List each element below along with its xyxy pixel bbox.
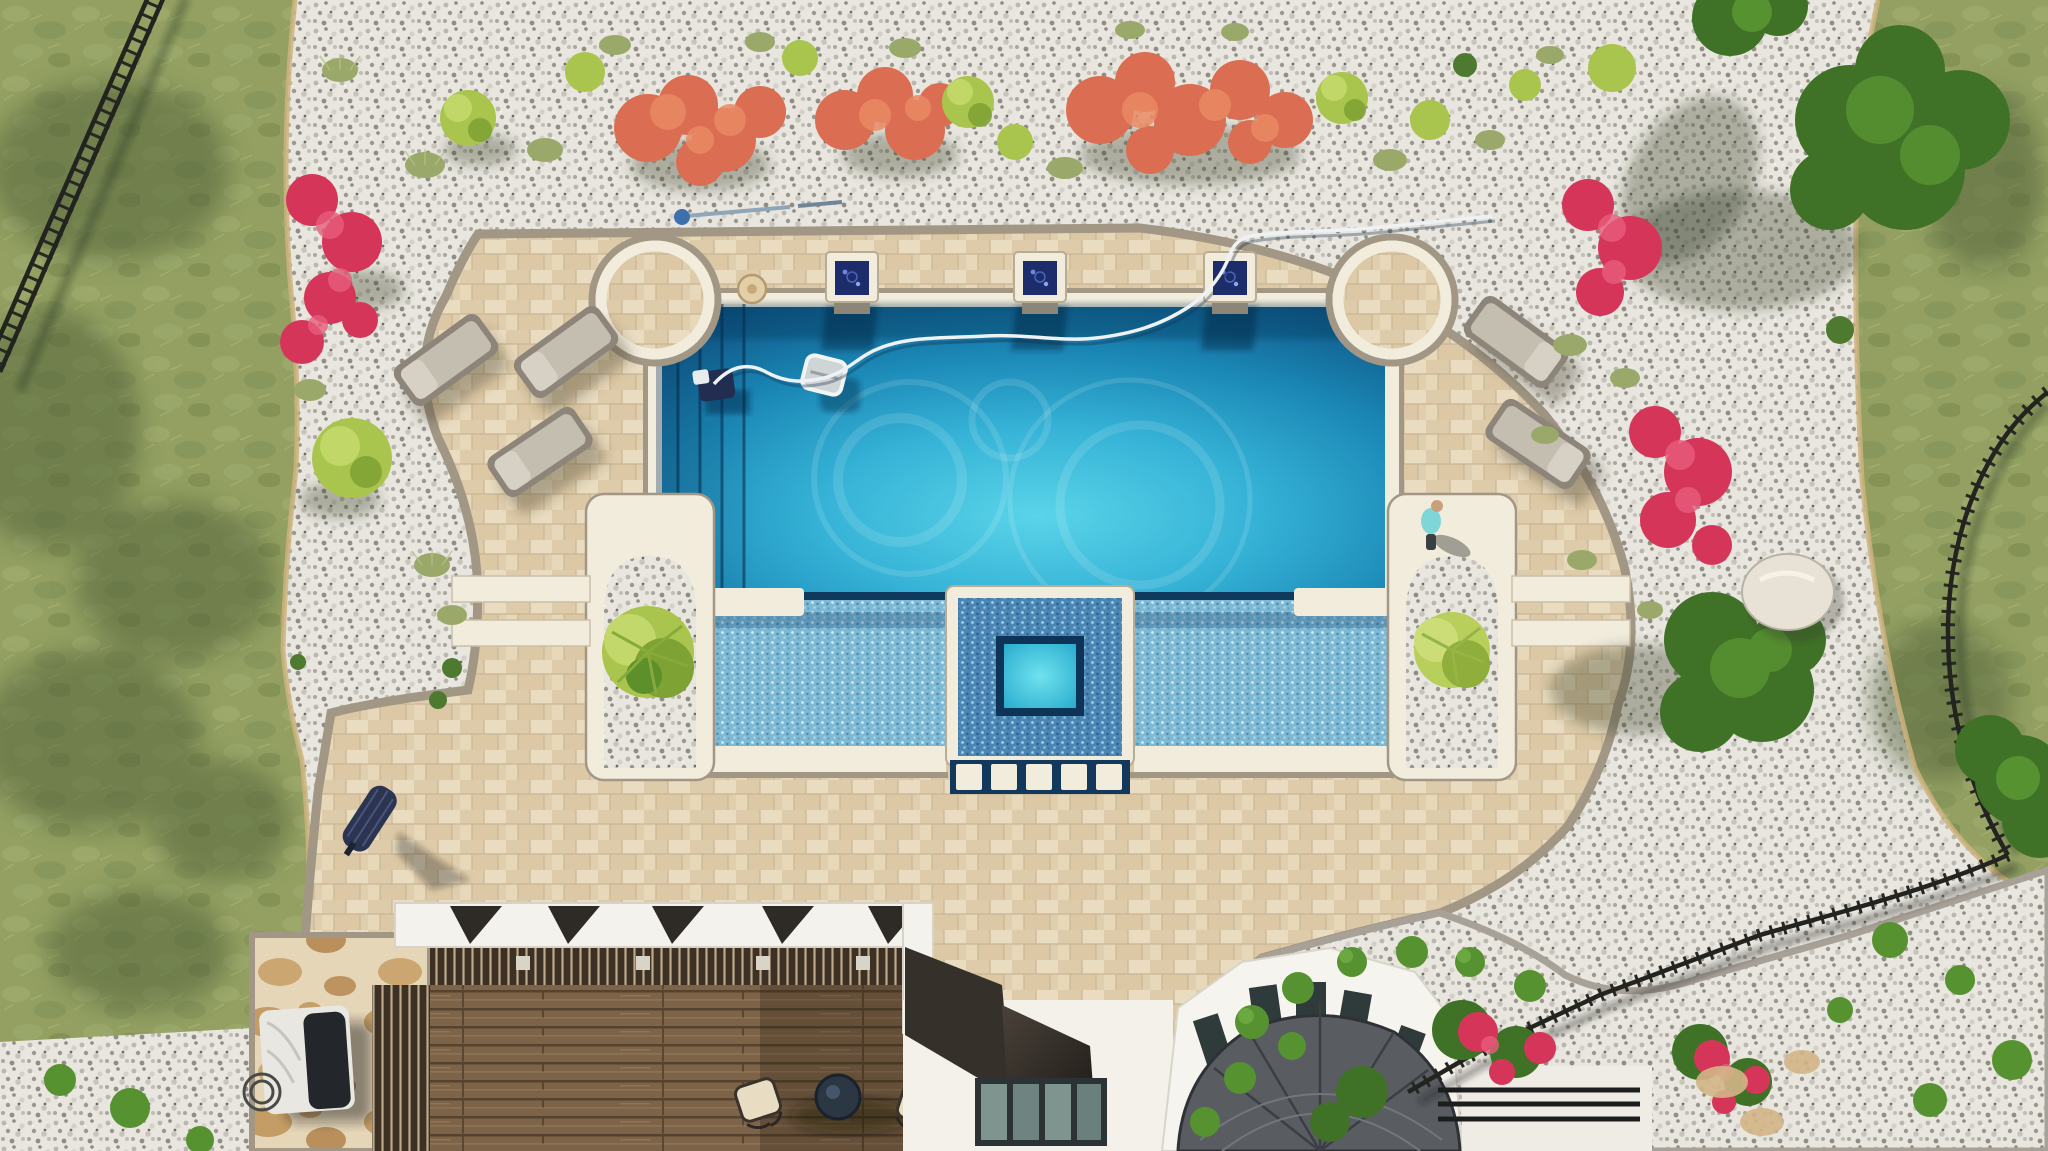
deck-medallion (738, 275, 766, 303)
ledge-border-right (1130, 772, 1394, 778)
grill (244, 1005, 372, 1122)
pergola-lattice-strip (430, 945, 905, 985)
pergola (372, 903, 945, 1151)
bistro-table (816, 1075, 860, 1119)
transom-window-strip (975, 1078, 1107, 1146)
spa-step-pads (956, 764, 1122, 790)
table-highlight (826, 1085, 840, 1099)
divider-coping-left (700, 588, 804, 616)
arch-planter-left (586, 494, 714, 780)
ledge-border-left (696, 772, 948, 778)
pool-complex (452, 216, 1630, 794)
scene-canvas (0, 0, 2048, 1151)
ledge-coping-left (700, 746, 946, 772)
person-head (1431, 500, 1443, 512)
planter-palm-right (1414, 612, 1490, 688)
aerial-backyard-photo (0, 0, 2048, 1151)
pergola-slat-column (372, 985, 430, 1151)
arch-planter-right (1388, 494, 1516, 780)
ledge-coping-right (1134, 746, 1392, 772)
planter-palm-left (602, 606, 694, 698)
divider-coping-right (1294, 588, 1392, 616)
spa (946, 586, 1134, 794)
person-legs (1426, 534, 1436, 550)
spa-water (1004, 644, 1076, 708)
house-wall-right (1462, 1066, 1652, 1151)
